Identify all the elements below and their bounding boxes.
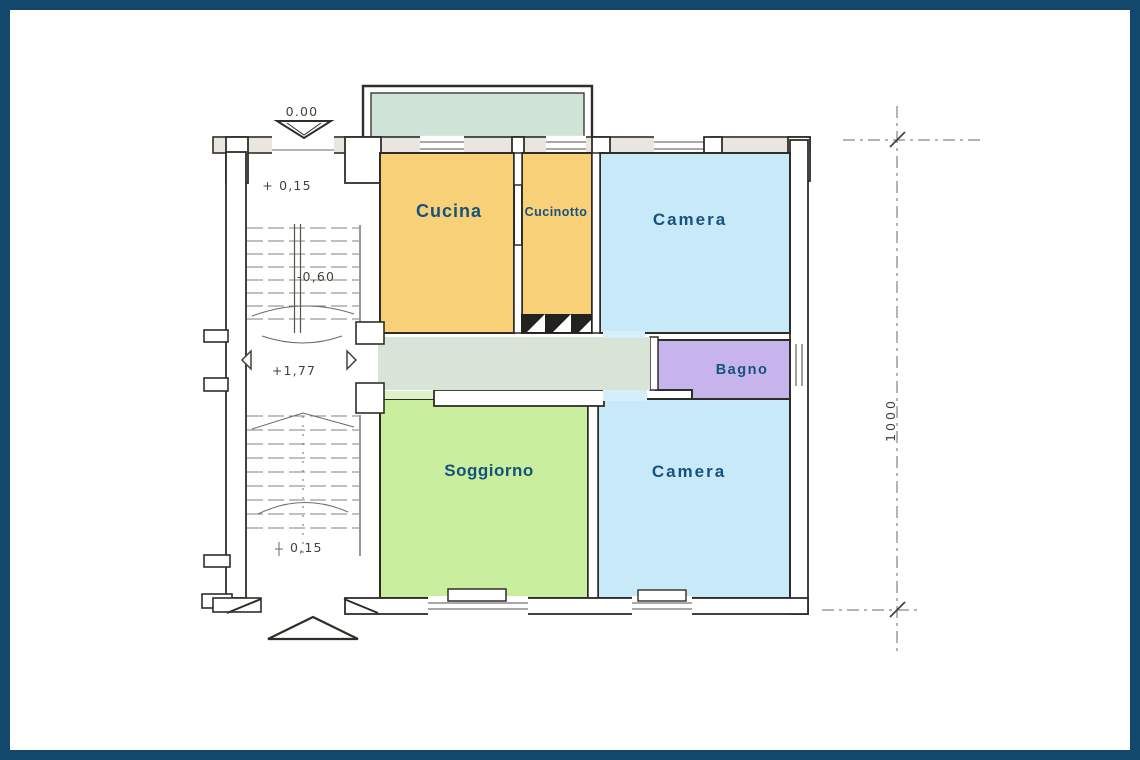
window-cucina bbox=[420, 136, 464, 154]
wall-corridor-bagno bbox=[650, 337, 658, 390]
floor-plan: 1000 0.00 + 0,15 -0,60 +1,77 0,15 Cucina… bbox=[10, 10, 1130, 750]
room-label-camera-bottom: Camera bbox=[652, 462, 726, 481]
corridor bbox=[378, 337, 650, 390]
wall-cucinotto-camera bbox=[592, 153, 600, 333]
hatched-threshold bbox=[521, 314, 592, 333]
window-camera-bottom bbox=[632, 590, 692, 616]
dimension-line-vertical: 1000 bbox=[822, 106, 985, 655]
level-label-street: 0.00 bbox=[286, 104, 319, 119]
dimension-label: 1000 bbox=[883, 398, 898, 442]
room-cucina bbox=[380, 153, 514, 333]
wall-cucina-cucinotto-bottom bbox=[514, 245, 522, 333]
balcony-top bbox=[363, 86, 592, 144]
level-label-landing: +1,77 bbox=[272, 363, 316, 378]
wall-stairwell-left bbox=[226, 152, 246, 598]
entry-arrow-bottom bbox=[268, 617, 358, 639]
wall-cucina-cucinotto-top bbox=[514, 153, 522, 185]
level-label-lower-flight: 0,15 bbox=[290, 540, 323, 555]
window-bagno bbox=[792, 344, 807, 386]
page-frame: 1000 0.00 + 0,15 -0,60 +1,77 0,15 Cucina… bbox=[0, 0, 1140, 760]
room-label-camera-top: Camera bbox=[653, 210, 727, 229]
room-label-cucina: Cucina bbox=[416, 201, 482, 221]
entry-arrow-top bbox=[277, 121, 331, 138]
wall-corridor-soggiorno bbox=[434, 390, 604, 406]
wall-soggiorno-camera bbox=[588, 399, 598, 598]
wall-bottom-band bbox=[345, 598, 808, 614]
door-threshold-soggiorno bbox=[383, 391, 433, 399]
window-camera-top bbox=[654, 136, 710, 154]
room-label-soggiorno: Soggiorno bbox=[444, 461, 533, 480]
level-labels: 0.00 + 0,15 -0,60 +1,77 0,15 bbox=[262, 104, 335, 555]
room-label-bagno: Bagno bbox=[716, 362, 769, 378]
window-cucinotto bbox=[546, 136, 586, 154]
room-soggiorno bbox=[380, 399, 588, 598]
entry-door-gap bbox=[272, 136, 334, 154]
room-camera-top bbox=[600, 153, 790, 333]
room-camera-bottom bbox=[598, 399, 790, 598]
door-threshold-camera-top bbox=[603, 331, 645, 338]
stairs-direction-arrows bbox=[252, 306, 354, 556]
door-swing-arrow-right bbox=[347, 351, 356, 369]
door-threshold-camera-bottom bbox=[603, 390, 647, 401]
level-label-mid-flight: -0,60 bbox=[297, 269, 335, 284]
room-cucinotto bbox=[522, 153, 592, 333]
room-label-cucinotto: Cucinotto bbox=[525, 205, 588, 219]
level-label-upper-flight: + 0,15 bbox=[262, 178, 311, 193]
